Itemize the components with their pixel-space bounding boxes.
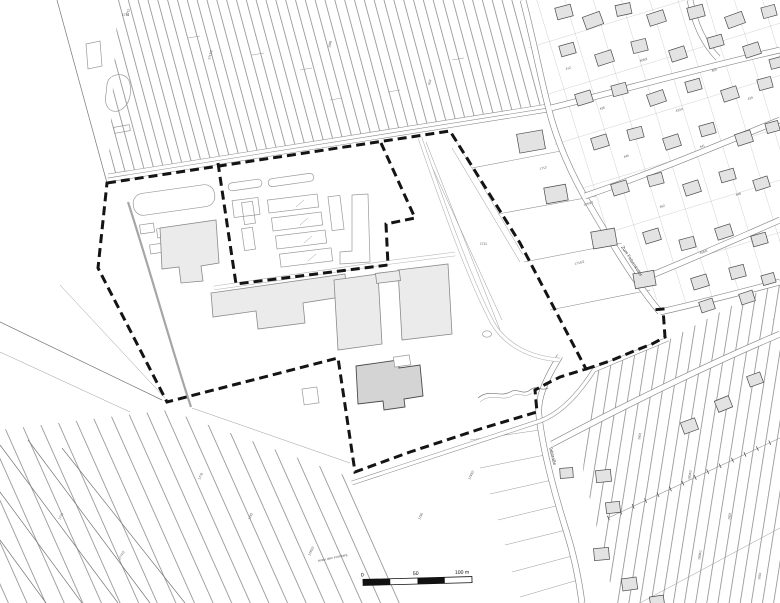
house [544,184,568,204]
house [517,130,546,153]
building-east-wing-a [334,274,382,350]
house [594,547,610,560]
scale-label-50: 50 [413,571,419,577]
building-east-wing-b [398,264,452,340]
house [591,228,618,249]
house [595,469,611,483]
house [560,468,574,479]
scale-label-0: 0 [361,572,364,578]
parcel-label: 1711 [480,242,487,246]
parcel-label: 1718 [122,13,129,17]
house [633,270,656,288]
house [605,501,620,513]
cadastral-map: Zum FelsenkellerTalstraßeHinter dem Kirc… [0,0,780,603]
map-canvas: Zum FelsenkellerTalstraßeHinter dem Kirc… [0,0,780,603]
scale-label-100: 100 m [455,570,470,576]
house [621,577,638,591]
